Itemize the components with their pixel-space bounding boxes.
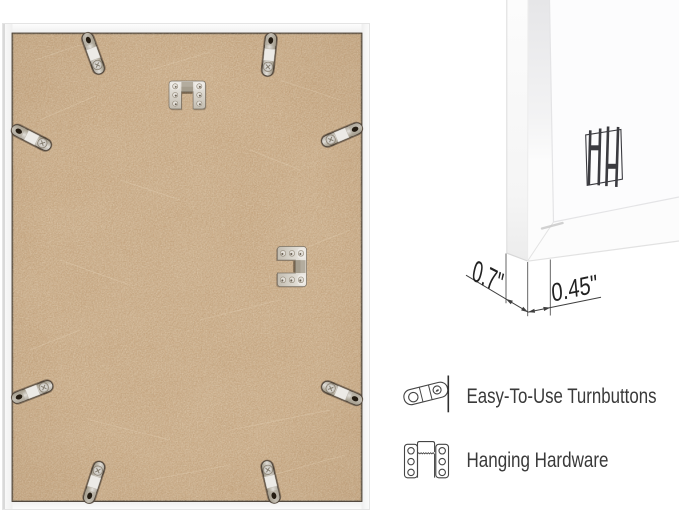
svg-text:Hanging Hardware: Hanging Hardware (467, 449, 609, 472)
svg-text:Easy-To-Use Turnbuttons: Easy-To-Use Turnbuttons (467, 385, 657, 408)
